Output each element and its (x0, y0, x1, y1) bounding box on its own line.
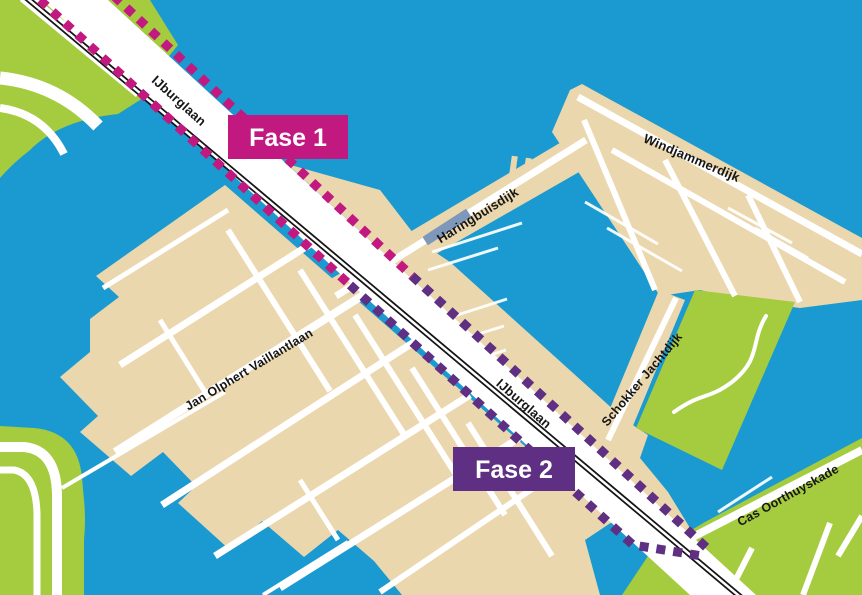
fase1-badge: Fase 1 (228, 115, 348, 159)
fase2-badge-label: Fase 2 (475, 456, 553, 484)
map-canvas: IJburglaan IJburglaan Haringbuisdijk Win… (0, 0, 862, 595)
map-stage: IJburglaan IJburglaan Haringbuisdijk Win… (0, 0, 862, 595)
fase1-badge-label: Fase 1 (249, 124, 327, 152)
fase2-badge: Fase 2 (453, 447, 575, 491)
